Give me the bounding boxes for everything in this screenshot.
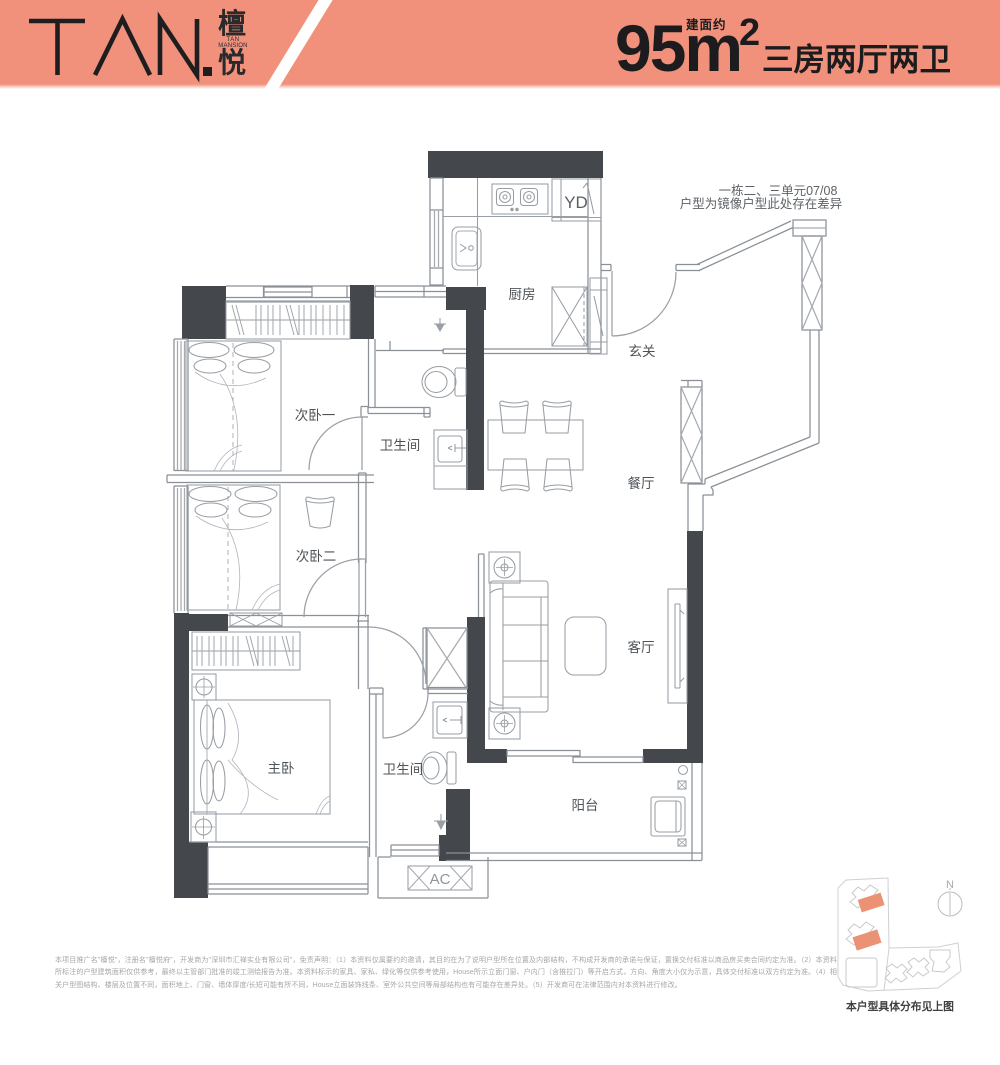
svg-text:N: N	[946, 879, 954, 891]
svg-text:餐厅: 餐厅	[628, 476, 655, 491]
svg-text:本户型具体分布见上图: 本户型具体分布见上图	[846, 999, 954, 1013]
svg-text:卫生间: 卫生间	[380, 438, 421, 453]
svg-text:一栋二、三单元07/08: 一栋二、三单元07/08	[719, 183, 838, 198]
svg-text:次卧二: 次卧二	[296, 549, 337, 564]
svg-text:主卧: 主卧	[268, 761, 295, 776]
svg-text:厨房: 厨房	[509, 287, 536, 302]
svg-text:AC: AC	[430, 871, 451, 888]
svg-text:客厅: 客厅	[628, 639, 655, 655]
svg-text:YD: YD	[564, 193, 588, 212]
svg-text:户型为镜像户型此处存在差异: 户型为镜像户型此处存在差异	[680, 196, 843, 211]
svg-text:卫生间: 卫生间	[383, 762, 424, 777]
svg-text:玄关: 玄关	[629, 343, 656, 359]
svg-text:次卧一: 次卧一	[295, 408, 336, 423]
svg-text:阳台: 阳台	[572, 798, 599, 813]
